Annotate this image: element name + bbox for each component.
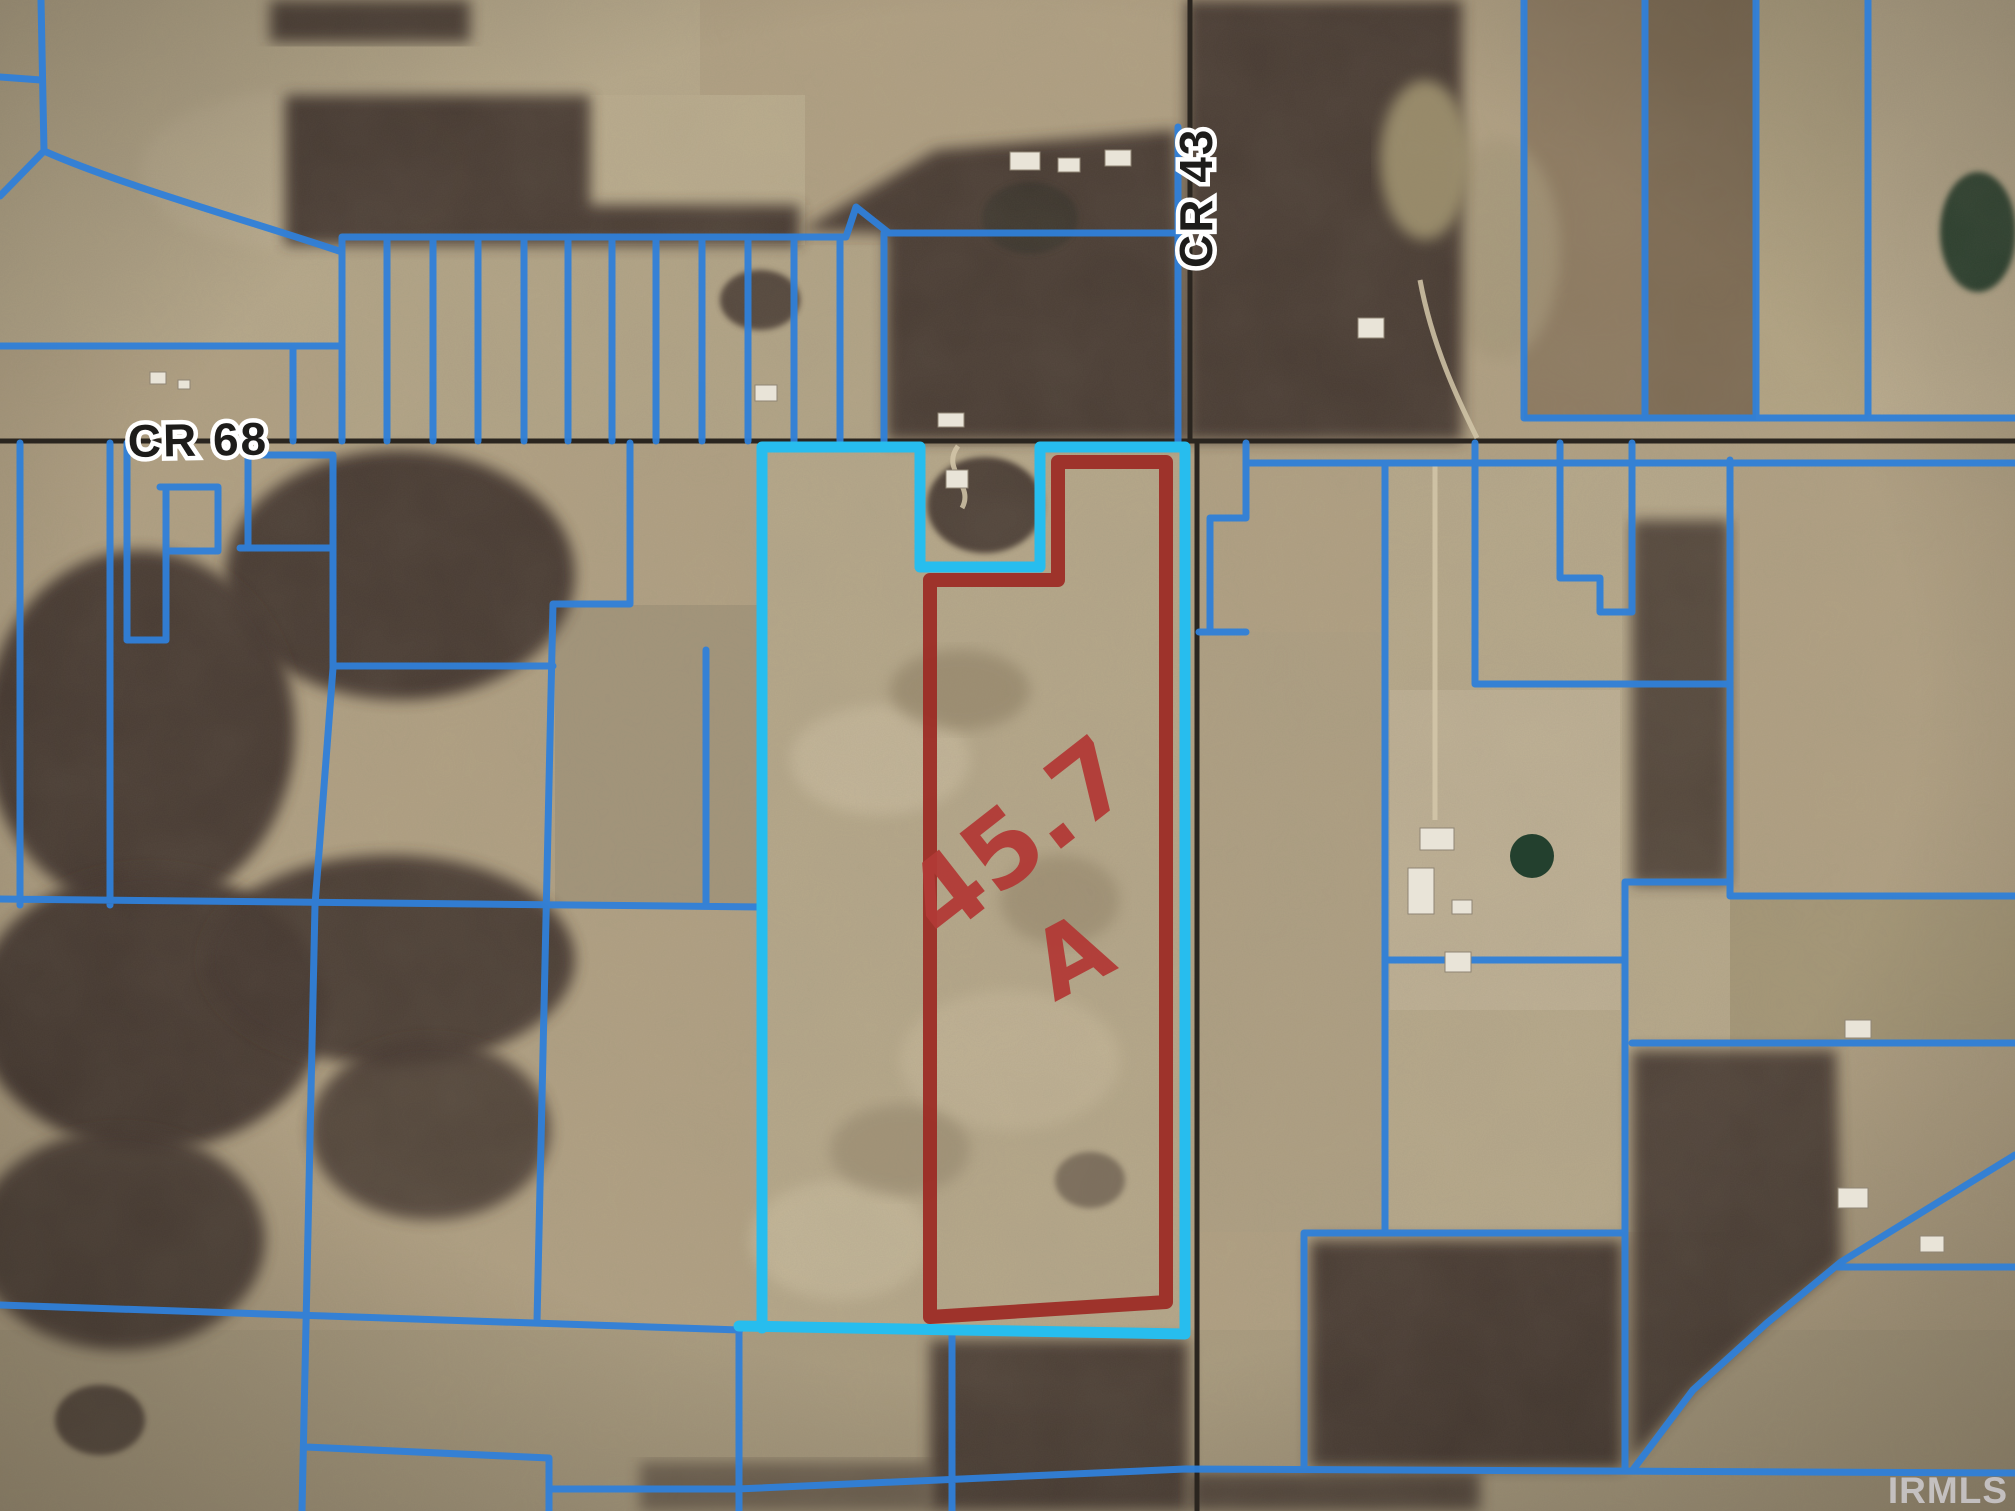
building: [1838, 1188, 1868, 1208]
road-label-cr43: CR 43: [1170, 128, 1222, 268]
building: [178, 380, 190, 389]
silo-tank: [1510, 834, 1554, 878]
building: [1420, 828, 1454, 850]
building: [1010, 152, 1040, 170]
building: [150, 372, 166, 384]
building: [1358, 318, 1384, 338]
building: [1408, 868, 1434, 914]
building: [946, 470, 968, 488]
vignette: [0, 0, 2015, 1511]
building: [1445, 952, 1471, 972]
building: [1845, 1020, 1871, 1038]
building: [1105, 150, 1131, 166]
building: [1452, 900, 1472, 914]
road-label-cr68: CR 68: [127, 413, 268, 467]
aerial-map-canvas: 45.7 A CR 68 CR 43 IRMLS: [0, 0, 2015, 1511]
building: [755, 385, 777, 401]
watermark: IRMLS: [1888, 1470, 2008, 1511]
building: [1920, 1236, 1944, 1252]
building: [1058, 158, 1080, 172]
aerial-background: [0, 0, 2015, 1511]
building: [938, 413, 964, 427]
parcel-map: 45.7 A CR 68 CR 43 IRMLS: [0, 0, 2015, 1511]
